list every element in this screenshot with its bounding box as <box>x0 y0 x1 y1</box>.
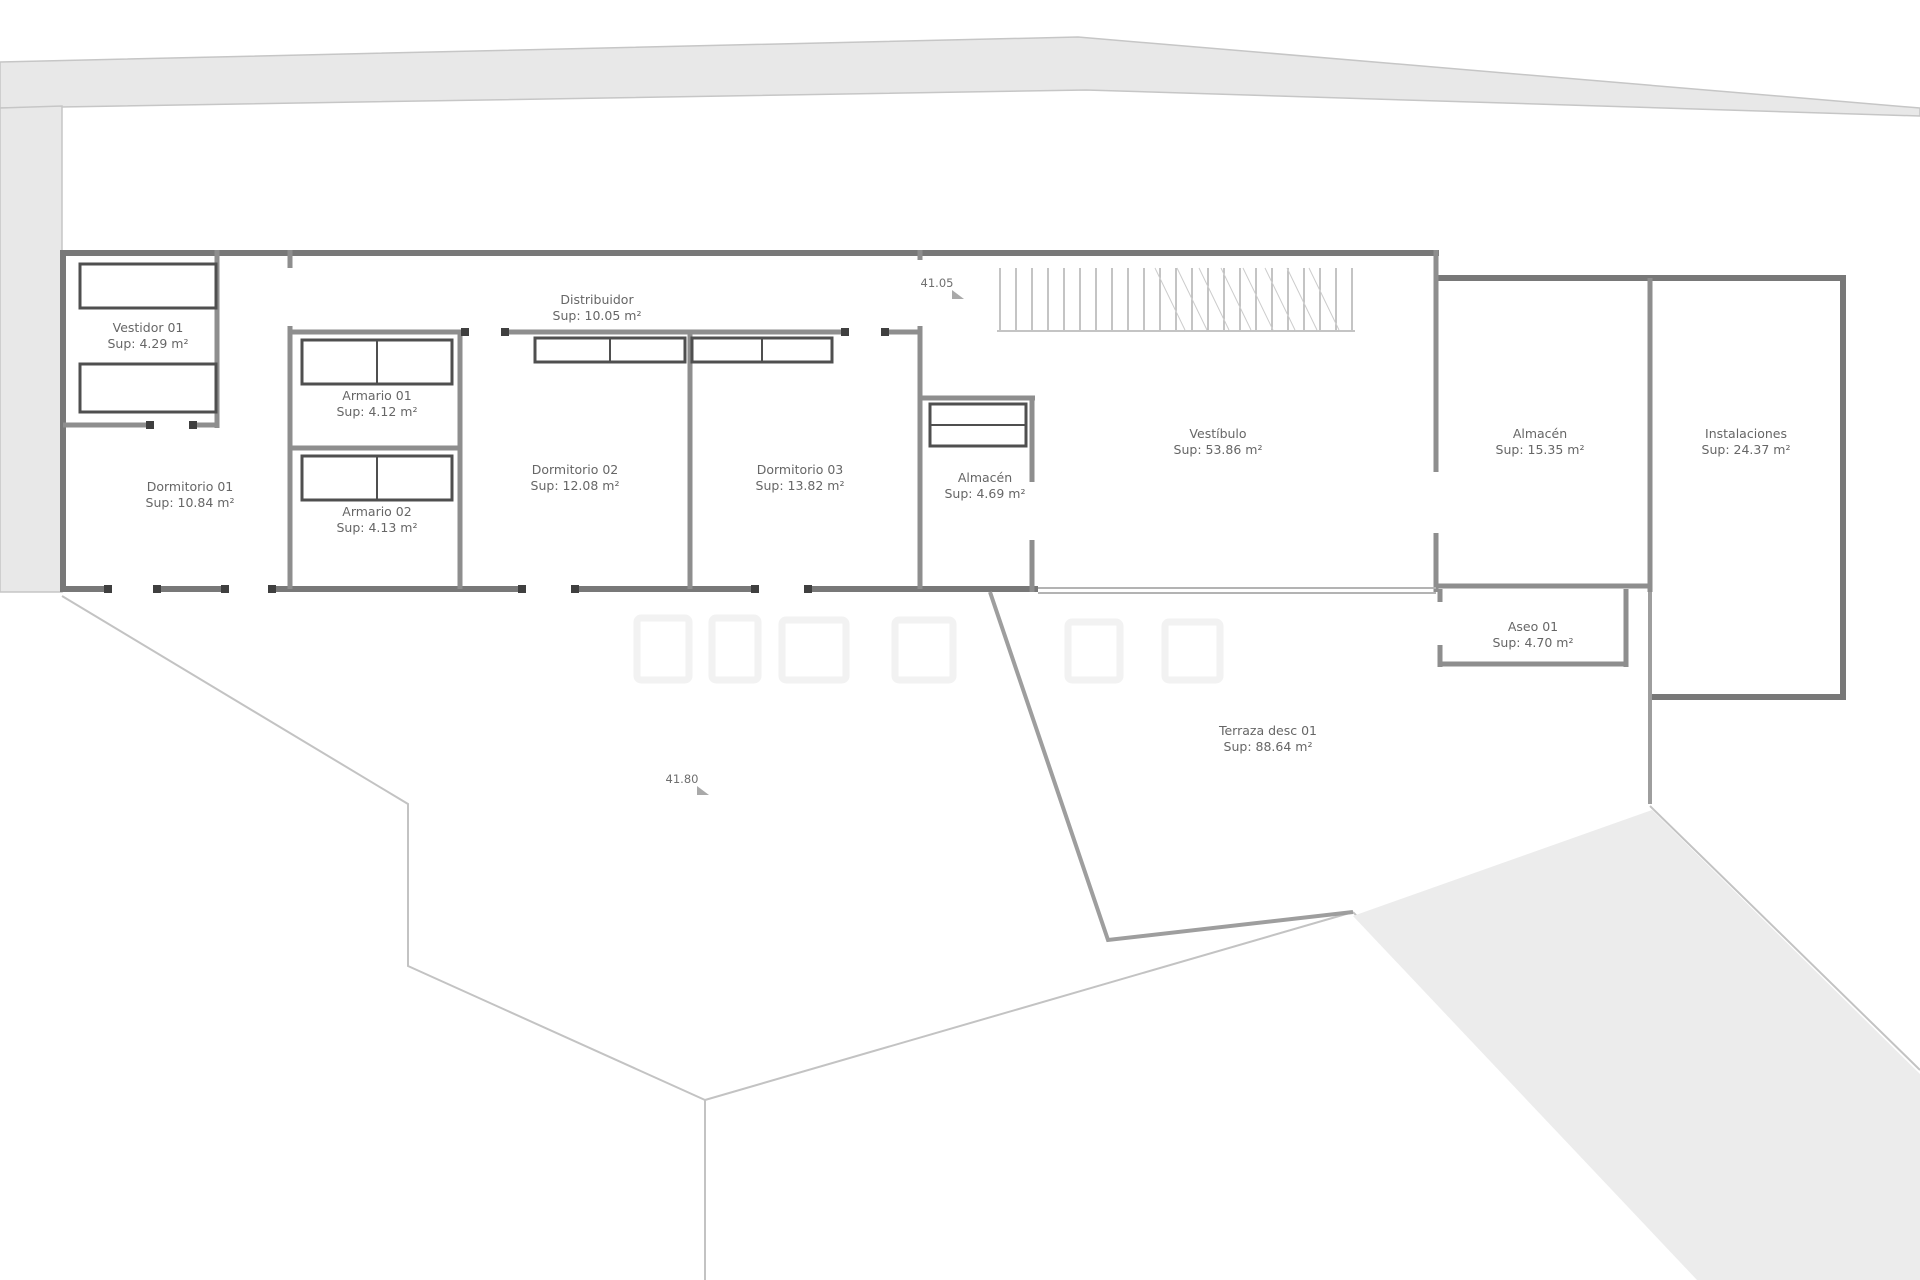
room-name: Vestíbulo <box>1189 426 1246 441</box>
site-line-south <box>705 912 1353 1100</box>
room-area: Sup: 4.70 m² <box>1493 635 1574 650</box>
room-area: Sup: 10.05 m² <box>553 308 642 323</box>
room-label-aseo-01: Aseo 01 Sup: 4.70 m² <box>1493 619 1574 650</box>
room-area: Sup: 4.12 m² <box>337 404 418 419</box>
level-flag-icon <box>952 290 964 299</box>
room-label-distribuidor: Distribuidor Sup: 10.05 m² <box>553 292 642 323</box>
room-area: Sup: 10.84 m² <box>146 495 235 510</box>
room-label-dormitorio-01: Dormitorio 01 Sup: 10.84 m² <box>146 479 235 510</box>
watermark-artifact <box>637 618 1220 680</box>
room-name: Terraza desc 01 <box>1218 723 1317 738</box>
room-label-dormitorio-03: Dormitorio 03 Sup: 13.82 m² <box>756 462 845 493</box>
site-corner-fill <box>1353 810 1920 1280</box>
room-label-instalaciones: Instalaciones Sup: 24.37 m² <box>1702 426 1791 457</box>
room-label-vestidor-01: Vestidor 01 Sup: 4.29 m² <box>108 320 189 351</box>
room-area: Sup: 24.37 m² <box>1702 442 1791 457</box>
room-name: Instalaciones <box>1705 426 1787 441</box>
closet-vestidor-bottom <box>80 364 216 412</box>
level-flag-icon <box>697 786 709 795</box>
site-left-band <box>0 106 62 592</box>
floor-plan-canvas: Vestidor 01 Sup: 4.29 m² Dormitorio 01 S… <box>0 0 1920 1280</box>
room-label-vestibulo: Vestíbulo Sup: 53.86 m² <box>1174 426 1263 457</box>
room-label-dormitorio-02: Dormitorio 02 Sup: 12.08 m² <box>531 462 620 493</box>
level-value: 41.80 <box>666 772 699 786</box>
room-label-almacen-02: Almacén Sup: 15.35 m² <box>1496 426 1585 457</box>
room-area: Sup: 88.64 m² <box>1224 739 1313 754</box>
room-name: Vestidor 01 <box>113 320 184 335</box>
room-name: Armario 02 <box>342 504 411 519</box>
room-label-terraza: Terraza desc 01 Sup: 88.64 m² <box>1218 723 1317 754</box>
room-label-almacen-01: Almacén Sup: 4.69 m² <box>945 470 1026 501</box>
door-jambs <box>104 328 889 593</box>
room-name: Distribuidor <box>560 292 634 307</box>
glass-wall <box>1038 588 1436 593</box>
site-top-band <box>0 37 1920 116</box>
room-name: Almacén <box>958 470 1012 485</box>
room-area: Sup: 12.08 m² <box>531 478 620 493</box>
room-label-armario-01: Armario 01 Sup: 4.12 m² <box>337 388 418 419</box>
room-name: Dormitorio 01 <box>147 479 234 494</box>
room-name: Armario 01 <box>342 388 411 403</box>
room-name: Aseo 01 <box>1508 619 1558 634</box>
site-line-southwest <box>62 596 705 1280</box>
room-area: Sup: 13.82 m² <box>756 478 845 493</box>
room-name: Dormitorio 02 <box>532 462 619 477</box>
closet-vestidor-top <box>80 264 216 308</box>
site-boundary <box>0 37 1920 1280</box>
level-marker-upper: 41.05 <box>921 276 964 299</box>
level-value: 41.05 <box>921 276 954 290</box>
room-name: Almacén <box>1513 426 1567 441</box>
room-label-armario-02: Armario 02 Sup: 4.13 m² <box>337 504 418 535</box>
level-marker-lower: 41.80 <box>666 772 709 795</box>
room-area: Sup: 4.69 m² <box>945 486 1026 501</box>
floor-plan-page: Vestidor 01 Sup: 4.29 m² Dormitorio 01 S… <box>0 0 1920 1280</box>
room-area: Sup: 4.13 m² <box>337 520 418 535</box>
staircase <box>997 268 1355 331</box>
room-area: Sup: 4.29 m² <box>108 336 189 351</box>
room-area: Sup: 15.35 m² <box>1496 442 1585 457</box>
room-area: Sup: 53.86 m² <box>1174 442 1263 457</box>
room-name: Dormitorio 03 <box>757 462 844 477</box>
